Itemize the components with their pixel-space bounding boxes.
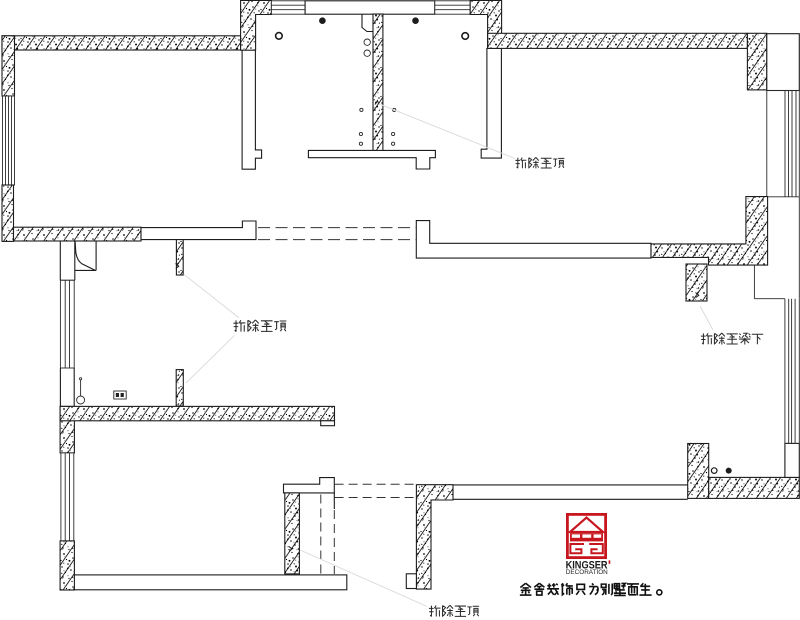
svg-text:DECORATION: DECORATION bbox=[566, 569, 608, 576]
